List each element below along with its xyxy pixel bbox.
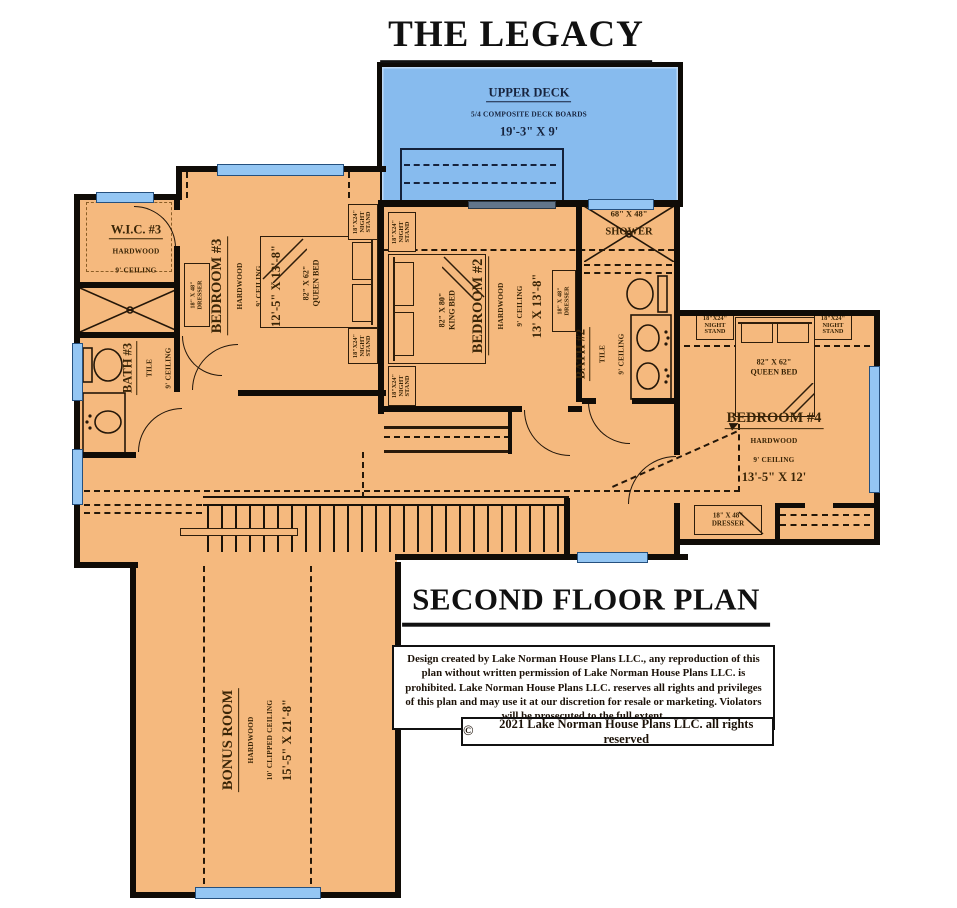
deck-size: 19'-3" X 9' <box>500 124 558 138</box>
wall <box>568 406 582 412</box>
room-ceiling: 10' CLIPPED CEILING <box>265 700 274 780</box>
bed-size: 82" X 80" <box>438 293 447 328</box>
night-stand-label: 18"X24" NIGHT STAND <box>703 316 727 336</box>
night-stand-word: STAND <box>404 376 411 397</box>
room-name: BEDROOM #3 <box>209 237 228 336</box>
room-name: BEDROOM #4 <box>725 410 824 429</box>
king-bed-label: 82" X 80" KING BED <box>438 290 459 330</box>
deck-stair-line <box>404 164 556 166</box>
bath2-label: BATH #2 TILE 9' CEILING <box>571 327 629 381</box>
wall <box>174 200 180 210</box>
deck-label: UPPER DECK 5/4 COMPOSITE DECK BOARDS 19'… <box>471 83 587 141</box>
shower-name: SHOWER <box>605 226 652 237</box>
copyright-icon: © <box>463 724 473 740</box>
bed-type: QUEEN BED <box>312 260 321 307</box>
room-size: 12'-5" X 13'-8" <box>269 245 283 327</box>
dresser: 18" X 48" DRESSER <box>694 505 762 535</box>
room-ceiling: 9' CEILING <box>115 265 156 274</box>
window <box>195 887 321 899</box>
window <box>577 552 648 563</box>
stair-rail-dash <box>84 512 202 514</box>
room-ceiling: 9' CEILING <box>515 285 524 326</box>
room-name: BATH #2 <box>573 327 590 381</box>
dresser-label: 18" X 48" DRESSER <box>190 280 203 309</box>
bed-size: 82" X 62" <box>302 266 311 301</box>
bath3-label: BATH #3 TILE 9' CEILING <box>118 341 176 395</box>
shower-icon <box>80 288 180 332</box>
dashed-line <box>584 264 672 266</box>
room-name: BEDROOM #2 <box>470 257 489 356</box>
dresser-word: DRESSER <box>563 286 570 315</box>
room-ceiling: 9' CEILING <box>163 347 172 388</box>
room-floor: HARDWOOD <box>112 246 159 255</box>
floor-title: SECOND FLOOR PLAN <box>402 582 770 627</box>
wall <box>74 282 180 288</box>
wall <box>378 200 384 414</box>
wall <box>674 503 680 556</box>
window <box>72 343 83 401</box>
pillow <box>777 323 809 343</box>
room-size: 13' X 13'-8" <box>530 274 544 339</box>
night-stand-label: 18"X24" NIGHT STAND <box>353 334 373 358</box>
pillow <box>352 242 372 280</box>
wall <box>130 562 136 898</box>
night-stand-label: 18"X24" NIGHT STAND <box>392 220 412 244</box>
queen-bed-label: 82" X 62" QUEEN BED <box>302 260 323 307</box>
window <box>72 449 83 505</box>
dashed-line <box>186 172 188 198</box>
window <box>217 164 344 176</box>
wic3-label: W.I.C. #3 HARDWOOD 9' CEILING <box>109 220 163 278</box>
night-stand-word: STAND <box>705 328 726 335</box>
wall <box>674 310 880 316</box>
room-ceiling: 9' CEILING <box>616 333 625 374</box>
room-name: BATH #3 <box>120 341 137 395</box>
dresser-label: 18" X 48" DRESSER <box>557 286 570 315</box>
clipped-ceiling-line <box>203 566 205 884</box>
shower-label: 68" X 48" SHOWER <box>605 203 652 238</box>
dashed-line <box>348 172 350 198</box>
bed-size: 82" X 62" <box>757 358 792 367</box>
copyright-box: © 2021 Lake Norman House Plans LLC. all … <box>461 717 774 746</box>
shower-size: 68" X 48" <box>611 208 648 218</box>
night-stand-word: STAND <box>404 222 411 243</box>
wall <box>632 398 680 404</box>
room-floor: TILE <box>144 359 153 377</box>
bedroom2-label: BEDROOM #2 HARDWOOD 9' CEILING 13' X 13'… <box>469 257 547 356</box>
pillow <box>352 284 372 322</box>
closet-shelf-dash <box>780 524 870 526</box>
pillow <box>741 323 773 343</box>
night-stand: 18"X24" NIGHT STAND <box>388 212 416 252</box>
wall <box>680 539 880 545</box>
closet-shelf <box>384 426 510 429</box>
wall <box>238 390 386 396</box>
night-stand: 18"X24" NIGHT STAND <box>388 366 416 406</box>
sliding-door <box>468 201 556 209</box>
wall <box>74 332 180 338</box>
wall <box>833 503 874 508</box>
room-floor: HARDWOOD <box>750 436 797 445</box>
plan-title: THE LEGACY <box>380 13 652 63</box>
toilet-icon <box>624 274 674 314</box>
room-name: BONUS ROOM <box>220 688 239 792</box>
stair-rail-dash <box>84 504 202 506</box>
night-stand: 18"X24" NIGHT STAND <box>814 312 852 340</box>
room-floor: HARDWOOD <box>496 283 505 330</box>
pillow <box>394 262 414 306</box>
bedroom4-label: BEDROOM #4 HARDWOOD 9' CEILING 13'-5" X … <box>725 409 824 487</box>
floor-title-text: SECOND FLOOR PLAN <box>402 582 770 627</box>
night-stand: 18"X24" NIGHT STAND <box>348 204 378 240</box>
window <box>869 366 880 493</box>
deck-material: 5/4 COMPOSITE DECK BOARDS <box>471 109 587 118</box>
room-ceiling: 9' CEILING <box>753 455 794 464</box>
night-stand-word: STAND <box>823 328 844 335</box>
wall <box>674 200 680 455</box>
dresser: 18" X 48" DRESSER <box>552 270 576 332</box>
room-floor: HARDWOOD <box>246 716 255 763</box>
stair-railing <box>203 496 569 506</box>
room-name: W.I.C. #3 <box>109 222 163 239</box>
night-stand: 18"X24" NIGHT STAND <box>696 312 734 340</box>
night-stand-word: STAND <box>365 336 372 357</box>
closet-shelf-dash <box>780 514 870 516</box>
room-floor: HARDWOOD <box>235 263 244 310</box>
clipped-ceiling-line <box>310 566 312 884</box>
night-stand-label: 18"X24" NIGHT STAND <box>353 210 373 234</box>
dashed-line <box>362 452 364 498</box>
wall <box>564 498 570 556</box>
bed-type: KING BED <box>448 290 457 330</box>
bedroom3-label: BEDROOM #3 HARDWOOD 9' CEILING 12'-5" X … <box>208 237 286 336</box>
closet-edge <box>384 450 510 453</box>
plan-title-text: THE LEGACY <box>380 13 652 63</box>
double-vanity-icon <box>630 314 674 400</box>
deck-stairs <box>400 148 564 206</box>
disclaimer-text: Design created by Lake Norman House Plan… <box>405 653 762 722</box>
dresser-label: 18" X 48" DRESSER <box>712 512 744 529</box>
room-size: 13'-5" X 12' <box>742 470 807 484</box>
wall <box>378 406 522 412</box>
copyright-text: 2021 Lake Norman House Plans LLC. all ri… <box>480 717 772 747</box>
dresser: 18" X 48" DRESSER <box>184 263 210 327</box>
dresser-word: DRESSER <box>712 520 744 528</box>
sink-icon <box>82 392 126 454</box>
stair-landing-edge <box>180 528 298 536</box>
pillow <box>394 312 414 356</box>
queen-bed-label: 82" X 62" QUEEN BED <box>751 358 798 379</box>
deck-stair-line <box>404 182 556 184</box>
closet-rod <box>384 436 510 438</box>
room-floor: TILE <box>597 345 606 363</box>
wall <box>582 398 596 404</box>
room-ceiling: 9' CEILING <box>254 265 263 306</box>
night-stand: 18"X24" NIGHT STAND <box>348 328 378 364</box>
bonus-room-label: BONUS ROOM HARDWOOD 10' CLIPPED CEILING … <box>219 688 297 792</box>
night-stand-label: 18"X24" NIGHT STAND <box>821 316 845 336</box>
window <box>96 192 154 203</box>
room-size: 15'-5" X 21'-8" <box>280 699 294 781</box>
deck-name: UPPER DECK <box>487 85 572 102</box>
dresser-size: 18" X 48" <box>713 512 743 520</box>
wall <box>74 562 138 568</box>
night-stand-word: STAND <box>365 212 372 233</box>
night-stand-label: 18"X24" NIGHT STAND <box>392 374 412 398</box>
wall <box>74 452 136 458</box>
wall <box>775 503 780 539</box>
floor-plan: THE LEGACY SECOND FLOOR PLAN UPPER DECK … <box>0 0 957 908</box>
dresser-word: DRESSER <box>196 280 203 309</box>
wall <box>508 412 512 454</box>
bed-type: QUEEN BED <box>751 368 798 377</box>
